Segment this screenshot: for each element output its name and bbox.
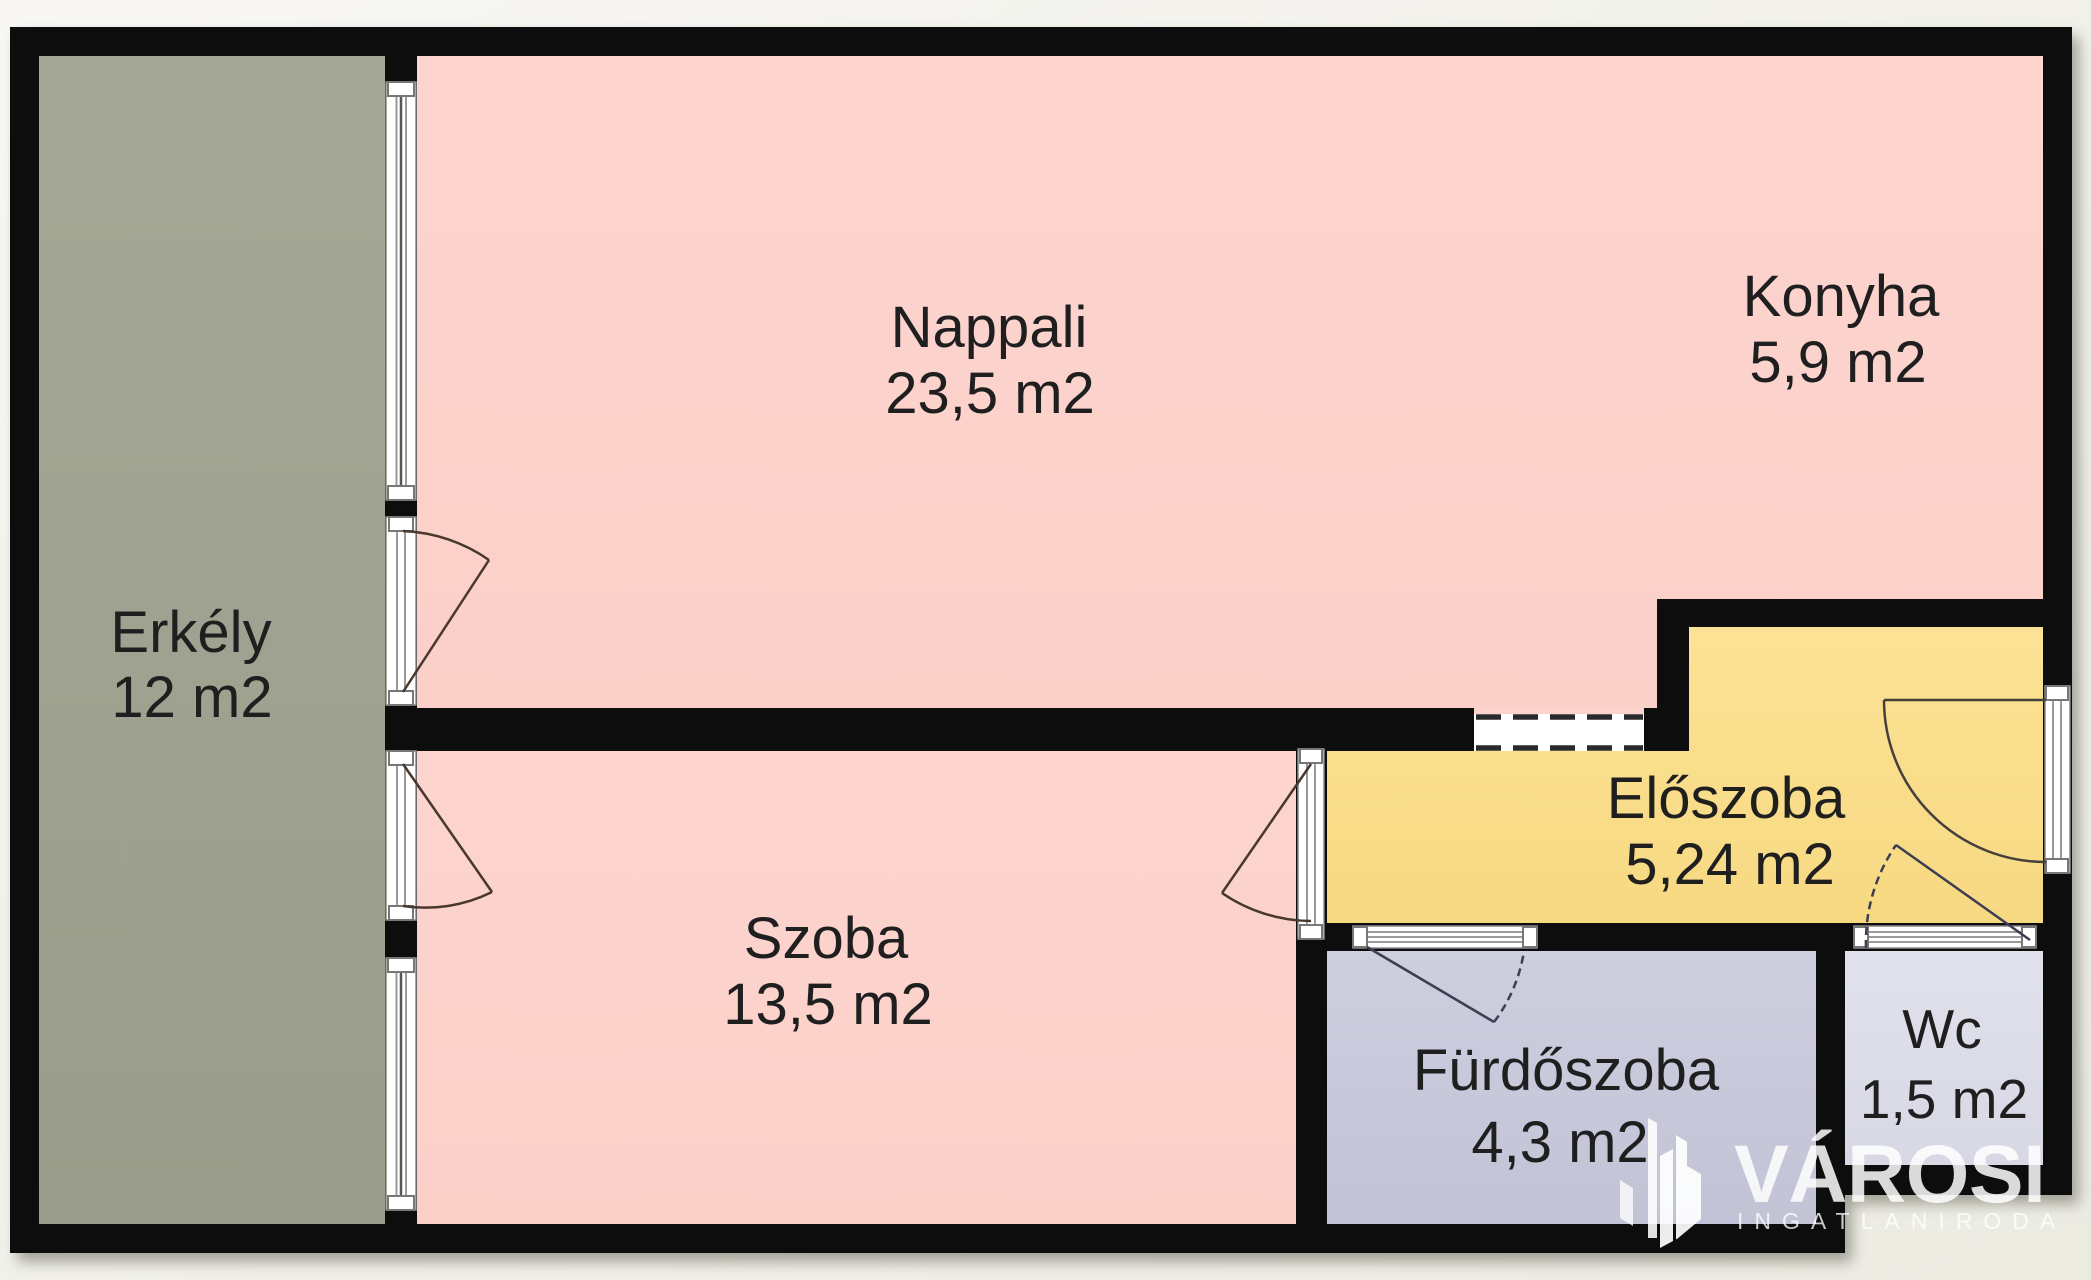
svg-text:Szoba: Szoba (744, 906, 909, 971)
svg-text:5,9 m2: 5,9 m2 (1749, 330, 1926, 395)
svg-text:Nappali: Nappali (891, 295, 1088, 360)
svg-text:12 m2: 12 m2 (111, 665, 272, 730)
svg-text:VÁROSI: VÁROSI (1734, 1129, 2045, 1220)
svg-text:Előszoba: Előszoba (1607, 766, 1846, 831)
svg-text:1,5 m2: 1,5 m2 (1860, 1068, 2028, 1130)
svg-text:Konyha: Konyha (1743, 264, 1940, 329)
svg-text:Fürdőszoba: Fürdőszoba (1413, 1038, 1720, 1103)
svg-text:Wc: Wc (1902, 998, 1981, 1060)
svg-text:5,24 m2: 5,24 m2 (1625, 832, 1835, 897)
svg-text:23,5 m2: 23,5 m2 (885, 361, 1095, 426)
svg-text:INGATLANIRODA: INGATLANIRODA (1737, 1208, 2066, 1234)
svg-text:4,3 m2: 4,3 m2 (1471, 1110, 1648, 1175)
svg-text:Erkély: Erkély (110, 600, 271, 665)
svg-text:13,5 m2: 13,5 m2 (723, 972, 933, 1037)
